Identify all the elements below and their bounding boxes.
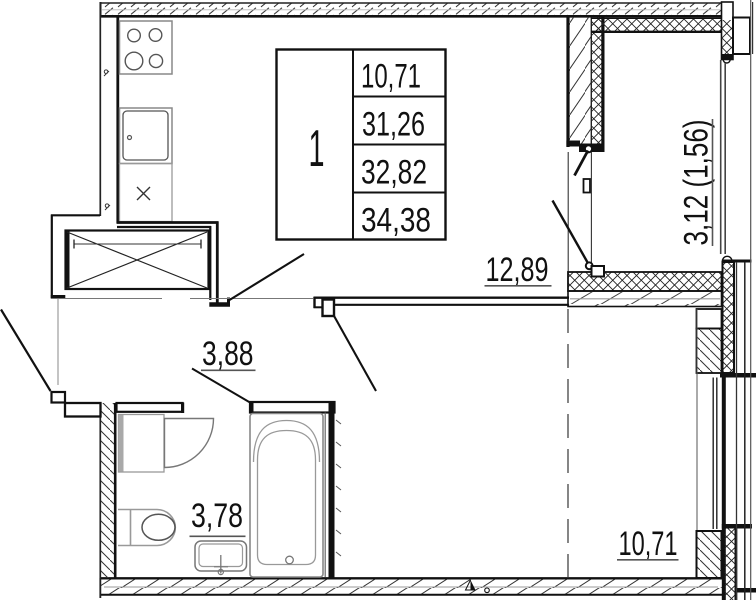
svg-text:12,89: 12,89	[486, 251, 549, 289]
svg-text:3,88: 3,88	[202, 335, 254, 373]
svg-text:31,26: 31,26	[362, 106, 425, 144]
svg-text:3,12 (1,56): 3,12 (1,56)	[678, 120, 716, 246]
svg-text:34,38: 34,38	[361, 202, 431, 240]
svg-text:10,71: 10,71	[361, 58, 421, 96]
svg-text:3,78: 3,78	[191, 497, 243, 535]
svg-text:10,71: 10,71	[619, 525, 678, 563]
svg-text:1: 1	[309, 120, 325, 178]
svg-text:32,82: 32,82	[361, 154, 427, 192]
